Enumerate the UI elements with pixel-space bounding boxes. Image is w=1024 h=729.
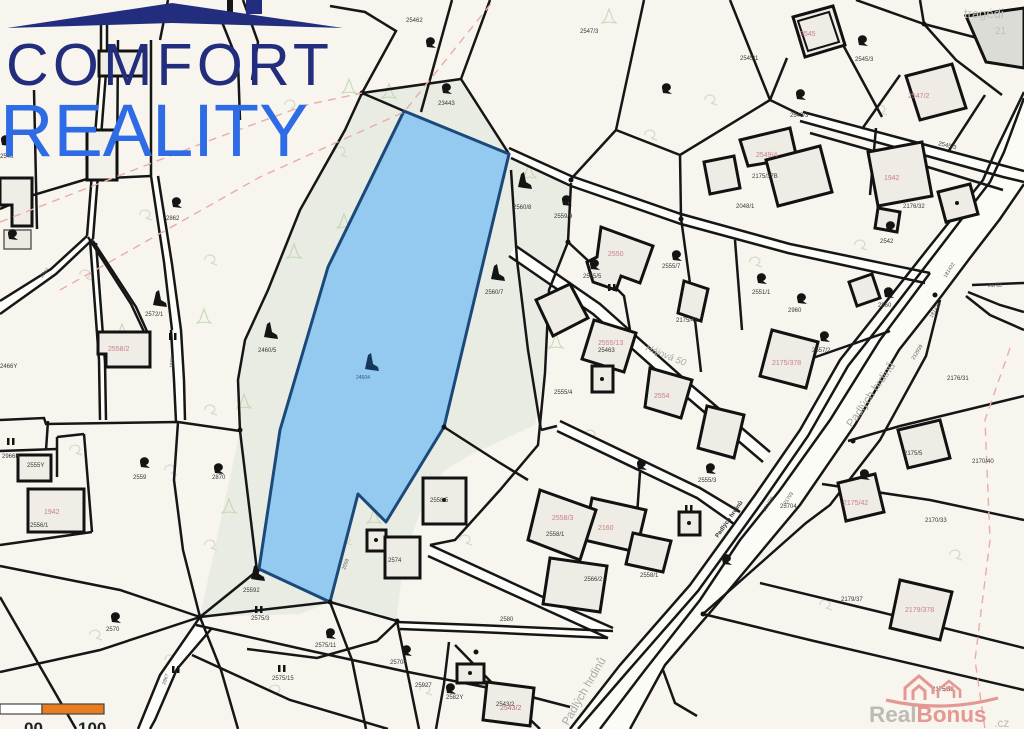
svg-text:.cz: .cz	[994, 716, 1009, 729]
svg-text:21: 21	[995, 26, 1007, 37]
svg-text:2555/13: 2555/13	[598, 340, 623, 347]
svg-text:2558/3: 2558/3	[552, 515, 574, 522]
svg-text:1942: 1942	[884, 175, 900, 182]
svg-text:25704: 25704	[390, 660, 407, 666]
svg-text:2558/1: 2558/1	[546, 532, 565, 538]
svg-text:2870: 2870	[212, 475, 226, 481]
svg-text:2545: 2545	[800, 31, 816, 38]
svg-text:2175/42: 2175/42	[676, 318, 698, 324]
svg-text:2555Y: 2555Y	[27, 463, 44, 469]
svg-text:RealBonus: RealBonus	[869, 702, 987, 727]
svg-text:2547/3: 2547/3	[580, 29, 599, 35]
svg-text:25462: 25462	[406, 18, 423, 24]
svg-text:2570: 2570	[106, 627, 120, 633]
svg-text:2557/2: 2557/2	[812, 348, 831, 354]
svg-text:2860: 2860	[878, 303, 892, 309]
svg-text:REALITY: REALITY	[0, 89, 308, 172]
svg-text:25592: 25592	[243, 588, 260, 594]
svg-text:2176/32: 2176/32	[903, 204, 925, 210]
svg-text:2175/378: 2175/378	[772, 360, 801, 367]
svg-text:2862: 2862	[166, 216, 180, 222]
svg-text:00: 00	[24, 719, 43, 729]
svg-text:2175/42: 2175/42	[843, 500, 868, 507]
svg-text:25463: 25463	[598, 348, 615, 354]
svg-text:2460/5: 2460/5	[258, 348, 277, 354]
svg-text:2170/40: 2170/40	[972, 459, 994, 465]
svg-text:2554: 2554	[654, 393, 670, 400]
svg-text:2560/8: 2560/8	[513, 205, 532, 211]
svg-text:2466Y: 2466Y	[0, 364, 17, 370]
svg-text:25704: 25704	[780, 504, 797, 510]
svg-text:2558/5: 2558/5	[430, 498, 449, 504]
svg-text:2170/33: 2170/33	[925, 518, 947, 524]
svg-text:2575/15: 2575/15	[272, 676, 294, 682]
svg-text:2558/1: 2558/1	[640, 573, 659, 579]
svg-text:2960: 2960	[788, 308, 802, 314]
svg-text:2176/31: 2176/31	[947, 376, 969, 382]
svg-text:2560/7: 2560/7	[485, 290, 504, 296]
svg-text:2549/4: 2549/4	[756, 152, 778, 159]
svg-text:2160: 2160	[598, 525, 614, 532]
svg-text:2575/3: 2575/3	[251, 616, 270, 622]
svg-text:25927: 25927	[415, 683, 432, 689]
svg-text:15/31: 15/31	[169, 355, 176, 368]
svg-text:2556/1: 2556/1	[30, 523, 49, 529]
svg-text:1942: 1942	[44, 509, 60, 516]
svg-text:2555/5: 2555/5	[583, 274, 602, 280]
svg-text:2555/3: 2555/3	[698, 478, 717, 484]
svg-text:2966B: 2966B	[2, 454, 19, 460]
svg-text:2545/3: 2545/3	[855, 57, 874, 63]
svg-text:2545/1: 2545/1	[740, 56, 759, 62]
svg-text:2582Y: 2582Y	[446, 695, 463, 701]
svg-text:2551/1: 2551/1	[752, 290, 771, 296]
svg-text:2572/1: 2572/1	[145, 312, 164, 318]
svg-text:2580: 2580	[500, 617, 514, 623]
svg-text:24604: 24604	[356, 375, 370, 381]
svg-text:2542: 2542	[880, 239, 894, 245]
svg-text:2558/2: 2558/2	[108, 346, 130, 353]
svg-text:100: 100	[78, 719, 106, 729]
svg-text:2555/7: 2555/7	[662, 264, 681, 270]
svg-text:2175/5: 2175/5	[904, 451, 923, 457]
svg-text:2048/1: 2048/1	[736, 204, 755, 210]
svg-text:2575/11: 2575/11	[315, 643, 337, 649]
svg-text:2555/4: 2555/4	[554, 390, 573, 396]
svg-text:2559: 2559	[133, 475, 147, 481]
svg-text:2550: 2550	[608, 251, 624, 258]
svg-text:2543/2: 2543/2	[500, 705, 522, 712]
svg-text:2549/3: 2549/3	[790, 113, 809, 119]
svg-text:2559/9: 2559/9	[554, 214, 573, 220]
svg-text:2179/37: 2179/37	[841, 597, 863, 603]
svg-text:21703: 21703	[988, 283, 1002, 289]
svg-text:2547/2: 2547/2	[908, 93, 930, 100]
svg-text:tragédi: tragédi	[964, 6, 1004, 21]
svg-text:2179/378: 2179/378	[905, 607, 934, 614]
svg-text:2566/2: 2566/2	[584, 577, 603, 583]
svg-text:2175/37B: 2175/37B	[752, 174, 778, 180]
svg-text:2574: 2574	[388, 558, 402, 564]
svg-text:23443: 23443	[438, 101, 455, 107]
